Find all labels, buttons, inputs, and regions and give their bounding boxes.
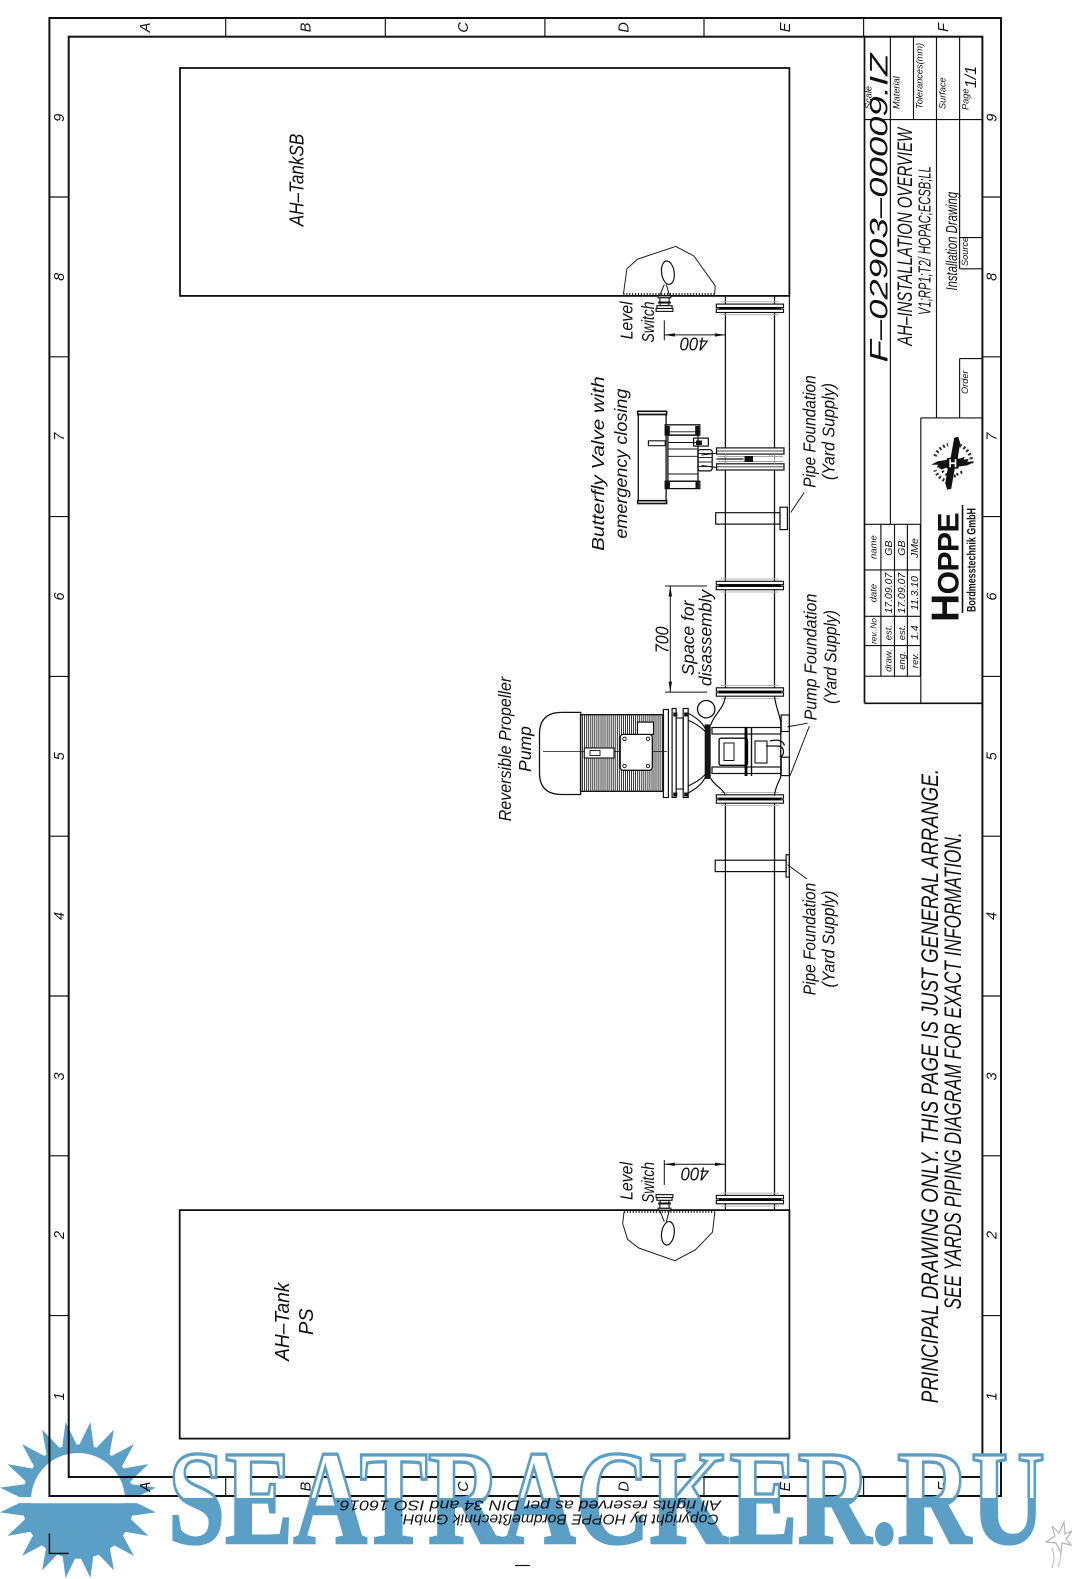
svg-text:Pipe Foundation: Pipe Foundation bbox=[800, 375, 820, 488]
svg-text:400: 400 bbox=[681, 1164, 709, 1184]
svg-text:Surface: Surface bbox=[938, 77, 948, 109]
svg-text:400: 400 bbox=[680, 334, 708, 354]
svg-text:Order: Order bbox=[960, 370, 970, 394]
svg-text:1: 1 bbox=[985, 1392, 1001, 1400]
svg-text:Installation Drawing: Installation Drawing bbox=[944, 192, 961, 291]
svg-text:8: 8 bbox=[52, 273, 68, 281]
svg-text:700: 700 bbox=[653, 627, 673, 654]
svg-text:3: 3 bbox=[985, 1072, 1001, 1080]
svg-text:1/1: 1/1 bbox=[963, 66, 980, 88]
svg-text:draw.: draw. bbox=[884, 649, 895, 672]
svg-text:F–02903–00009.IZ: F–02903–00009.IZ bbox=[865, 52, 893, 362]
svg-text:D: D bbox=[617, 22, 633, 32]
svg-text:7: 7 bbox=[52, 432, 68, 441]
svg-text:rev.: rev. bbox=[910, 653, 921, 668]
svg-text:(Yard Supply): (Yard Supply) bbox=[819, 891, 839, 988]
svg-text:6: 6 bbox=[52, 591, 68, 600]
svg-text:Bordmesstechnik GmbH: Bordmesstechnik GmbH bbox=[965, 508, 979, 612]
svg-text:eng.: eng. bbox=[897, 651, 908, 670]
svg-text:11.3.10: 11.3.10 bbox=[909, 576, 921, 610]
svg-text:JMe: JMe bbox=[909, 538, 921, 559]
svg-text:5: 5 bbox=[52, 751, 68, 760]
svg-text:4: 4 bbox=[52, 912, 68, 920]
svg-text:Switch: Switch bbox=[638, 302, 658, 343]
svg-text:disassembly: disassembly bbox=[696, 589, 716, 687]
svg-text:GB: GB bbox=[883, 541, 895, 556]
svg-text:17.09.07: 17.09.07 bbox=[896, 572, 908, 614]
svg-text:GB: GB bbox=[896, 541, 908, 556]
svg-text:2: 2 bbox=[52, 1231, 68, 1240]
svg-text:E: E bbox=[778, 22, 794, 32]
svg-text:C: C bbox=[456, 22, 472, 33]
svg-text:Source: Source bbox=[960, 237, 970, 266]
svg-text:SEE YARDS PIPING DIAGRAM FOR E: SEE YARDS PIPING DIAGRAM FOR EXACT INFOR… bbox=[940, 832, 967, 1309]
svg-text:B: B bbox=[298, 22, 314, 32]
svg-text:6: 6 bbox=[985, 591, 1001, 600]
svg-text:AH–INSTALLATION OVERVIEW: AH–INSTALLATION OVERVIEW bbox=[894, 126, 917, 347]
svg-text:Pipe Foundation: Pipe Foundation bbox=[800, 883, 820, 996]
svg-text:8: 8 bbox=[985, 273, 1001, 281]
svg-text:A: A bbox=[138, 23, 154, 34]
svg-text:AH–TankSB: AH–TankSB bbox=[286, 134, 308, 227]
svg-text:5: 5 bbox=[985, 751, 1001, 760]
svg-text:1.4: 1.4 bbox=[909, 625, 921, 640]
svg-text:date: date bbox=[869, 584, 880, 603]
svg-text:Switch: Switch bbox=[638, 1162, 658, 1203]
svg-text:Butterfly Valve with: Butterfly Valve with bbox=[588, 376, 608, 551]
svg-text:Pump Foundation: Pump Foundation bbox=[801, 594, 821, 721]
svg-text:1: 1 bbox=[52, 1392, 68, 1400]
svg-text:Pump: Pump bbox=[515, 726, 535, 772]
svg-text:Reversible Propeller: Reversible Propeller bbox=[495, 676, 515, 822]
svg-text:est.: est. bbox=[884, 625, 895, 640]
svg-text:V1;RP1;T2/ HOPAC;ECSB;LL: V1;RP1;T2/ HOPAC;ECSB;LL bbox=[915, 166, 935, 315]
svg-text:3: 3 bbox=[52, 1072, 68, 1080]
svg-text:9: 9 bbox=[985, 114, 1001, 122]
svg-text:Level: Level bbox=[617, 1161, 637, 1200]
svg-text:Tolerances(mm): Tolerances(mm) bbox=[915, 43, 925, 109]
svg-text:F: F bbox=[936, 22, 952, 32]
svg-text:AH–Tank: AH–Tank bbox=[272, 1282, 294, 1362]
svg-text:17.09.07: 17.09.07 bbox=[883, 572, 895, 614]
svg-text:Level: Level bbox=[617, 300, 637, 339]
svg-text:4: 4 bbox=[985, 912, 1001, 920]
svg-text:2: 2 bbox=[985, 1231, 1001, 1240]
svg-text:emergency closing: emergency closing bbox=[611, 388, 631, 538]
svg-text:7: 7 bbox=[985, 432, 1001, 441]
svg-text:(Yard Supply): (Yard Supply) bbox=[821, 610, 841, 704]
svg-text:Page: Page bbox=[961, 89, 971, 110]
svg-text:rev..No: rev..No bbox=[870, 618, 879, 644]
svg-text:9: 9 bbox=[52, 114, 68, 122]
svg-text:(Yard Supply): (Yard Supply) bbox=[819, 383, 839, 480]
svg-text:PS: PS bbox=[296, 1308, 318, 1335]
svg-text:name: name bbox=[869, 535, 880, 559]
svg-text:est.: est. bbox=[897, 625, 908, 640]
